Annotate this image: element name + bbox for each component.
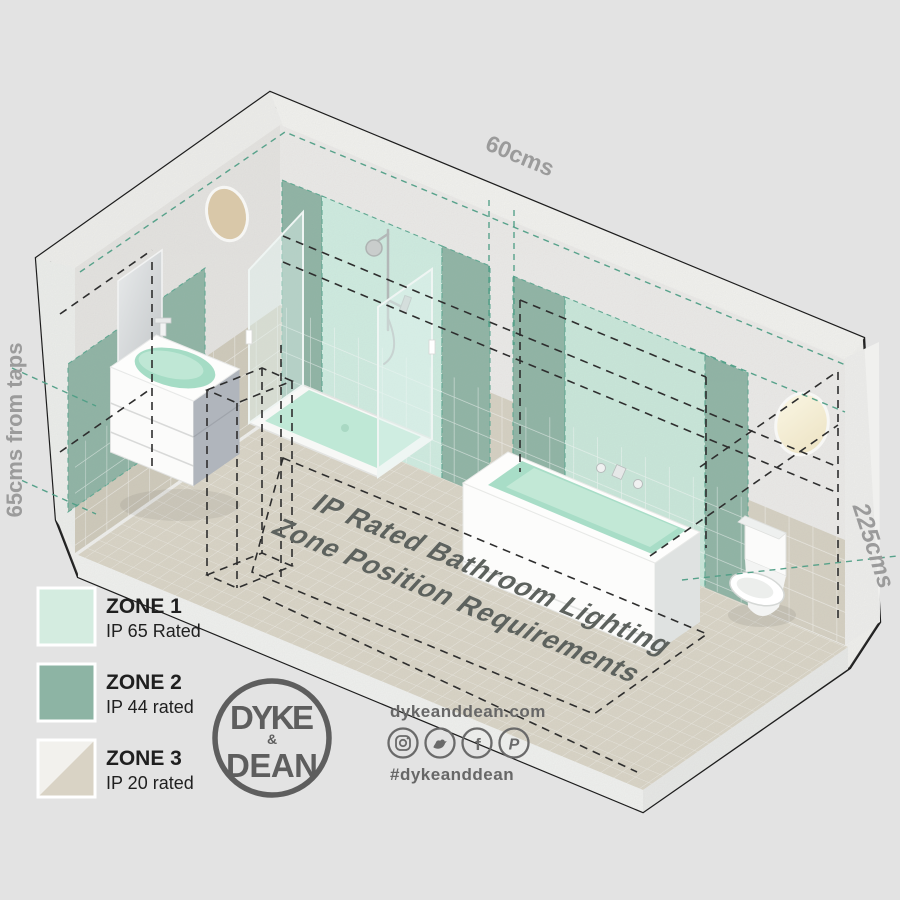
dimension-left-label: 65cms from taps: [2, 343, 27, 518]
zone3-name: ZONE 3: [106, 747, 182, 770]
svg-text:f: f: [475, 735, 481, 754]
website-text[interactable]: dykeanddean.com: [390, 702, 546, 721]
bathroom-zone-diagram: IP Rated Bathroom Lighting Zone Position…: [0, 0, 900, 900]
zone2-name: ZONE 2: [106, 671, 182, 694]
legend-zone3: ZONE 3 IP 20 rated: [38, 740, 194, 797]
zone3-rating: IP 20 rated: [106, 773, 194, 793]
logo-ampersand: &: [267, 731, 277, 747]
zone1-swatch: [38, 588, 95, 645]
hashtag-text: #dykeanddean: [390, 765, 514, 784]
zone2-rating: IP 44 rated: [106, 697, 194, 717]
brand-logo: DYKE & DEAN: [215, 681, 329, 795]
legend-zone1: ZONE 1 IP 65 Rated: [38, 588, 201, 645]
zone1-name: ZONE 1: [106, 595, 182, 618]
zone2-swatch: [38, 664, 95, 721]
glass-hinge: [429, 340, 435, 354]
dimension-top-label: 60cms: [482, 130, 558, 182]
glass-hinge: [246, 330, 252, 344]
twitter-icon[interactable]: [426, 729, 455, 758]
zone1-rating: IP 65 Rated: [106, 621, 201, 641]
legend-zone2: ZONE 2 IP 44 rated: [38, 664, 194, 721]
svg-text:P: P: [509, 737, 520, 754]
infographic-canvas: IP Rated Bathroom Lighting Zone Position…: [0, 0, 900, 900]
shower-glass-front: [378, 269, 432, 477]
instagram-icon[interactable]: [389, 729, 418, 758]
logo-line-dean: DEAN: [226, 747, 318, 784]
legend: ZONE 1 IP 65 Rated ZONE 2 IP 44 rated ZO…: [38, 588, 201, 797]
